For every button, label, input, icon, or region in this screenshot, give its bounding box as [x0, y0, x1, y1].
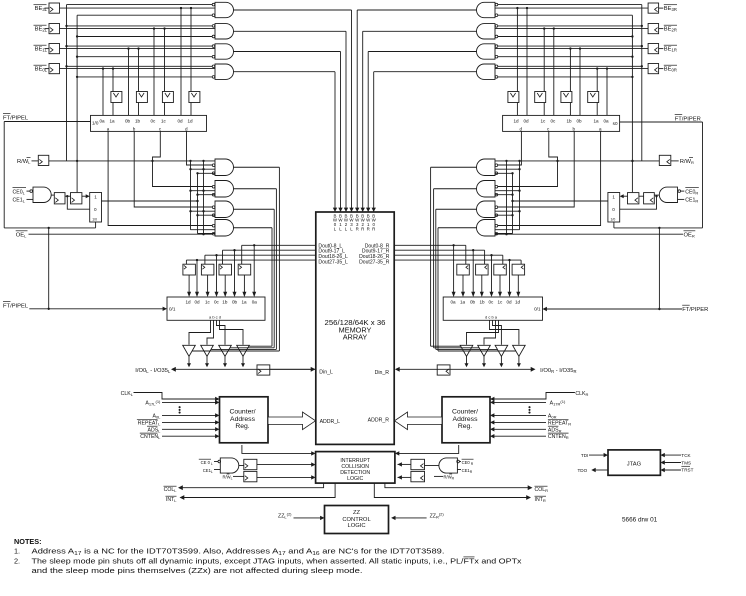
svg-text:0b: 0b: [470, 300, 476, 305]
svg-text:Reg.: Reg.: [458, 423, 472, 430]
svg-text:1.: 1.: [14, 547, 20, 556]
svg-text:0d: 0d: [507, 300, 513, 305]
svg-text:5666 drw 01: 5666 drw 01: [622, 516, 658, 523]
svg-text:CE1L: CE1L: [13, 198, 26, 204]
svg-text:0c: 0c: [214, 300, 220, 305]
svg-text:R: R: [367, 227, 370, 232]
svg-text:Dout27-35_R: Dout27-35_R: [359, 259, 390, 265]
svg-text:INTR: INTR: [535, 497, 546, 503]
svg-text:LOGIC: LOGIC: [347, 523, 365, 529]
svg-text:1c: 1c: [161, 118, 167, 123]
svg-text:COLR: COLR: [535, 487, 549, 493]
svg-text:b: b: [133, 126, 136, 131]
svg-text:R: R: [372, 227, 375, 232]
svg-text:CE0 R: CE0 R: [462, 460, 474, 466]
svg-text:Din_R: Din_R: [375, 370, 390, 376]
svg-text:A17L(1): A17L(1): [145, 399, 161, 406]
svg-text:CE0L: CE0L: [13, 189, 26, 195]
svg-text:BE1L: BE1L: [35, 47, 48, 53]
svg-text:TDI: TDI: [581, 453, 588, 458]
svg-text:INTERRUPT: INTERRUPT: [340, 458, 371, 464]
svg-text:1/0: 1/0: [92, 121, 99, 126]
svg-text:2.: 2.: [14, 556, 20, 565]
svg-text:CNTENR: CNTENR: [548, 434, 569, 440]
svg-text:LOGIC: LOGIC: [347, 476, 363, 482]
svg-text:INTL: INTL: [166, 497, 177, 503]
svg-text:0a: 0a: [100, 118, 106, 123]
svg-text:1/0: 1/0: [611, 217, 616, 221]
svg-text:1a: 1a: [242, 300, 248, 305]
svg-text:1d: 1d: [515, 300, 521, 305]
svg-text:d c b a: d c b a: [485, 314, 498, 319]
svg-text:FT/PIPER: FT/PIPER: [682, 307, 708, 313]
svg-text:0/1: 0/1: [169, 307, 176, 312]
svg-text:A0R: A0R: [548, 413, 557, 419]
svg-text:1/0: 1/0: [92, 217, 97, 221]
svg-text:CE 0 L: CE 0 L: [201, 460, 213, 466]
svg-text:1c: 1c: [541, 118, 547, 123]
svg-text:OER: OER: [684, 233, 695, 239]
svg-text:1c: 1c: [498, 300, 504, 305]
svg-text:BE0R: BE0R: [664, 67, 677, 73]
svg-text:TMS: TMS: [681, 460, 691, 465]
svg-text:BE2L: BE2L: [35, 27, 48, 33]
svg-text:R: R: [356, 227, 359, 232]
svg-text:1c: 1c: [205, 300, 211, 305]
svg-text:a b c d: a b c d: [209, 314, 221, 319]
svg-text:I/O0R - I/O35R: I/O0R - I/O35R: [540, 368, 576, 374]
svg-text:CE1R: CE1R: [462, 468, 473, 474]
svg-text:0d: 0d: [178, 118, 184, 123]
svg-text:d: d: [185, 126, 188, 131]
svg-text:0d: 0d: [524, 118, 530, 123]
svg-text:a: a: [599, 126, 602, 131]
svg-text:ADSL: ADSL: [147, 427, 161, 433]
svg-text:Reg.: Reg.: [235, 423, 249, 430]
svg-text:FT/PIPEL: FT/PIPEL: [3, 115, 29, 121]
svg-text:JTAG: JTAG: [627, 461, 642, 467]
svg-text:0b: 0b: [577, 118, 583, 123]
svg-text:I/O0L - I/O35L: I/O0L - I/O35L: [135, 368, 171, 374]
svg-text:DETECTION: DETECTION: [340, 470, 370, 476]
svg-text:ADSR: ADSR: [548, 427, 562, 433]
svg-text:CNTENL: CNTENL: [140, 434, 161, 440]
svg-text:ZZL(2): ZZL(2): [278, 512, 292, 520]
svg-text:b: b: [573, 126, 576, 131]
svg-text:0/1: 0/1: [534, 307, 541, 312]
svg-text:ZZ: ZZ: [353, 510, 361, 516]
svg-text:0: 0: [612, 207, 615, 212]
svg-text:0a: 0a: [451, 300, 457, 305]
svg-text:BE3L: BE3L: [35, 6, 48, 12]
svg-text:1b: 1b: [567, 118, 573, 123]
svg-text:FT/PIPEL: FT/PIPEL: [3, 303, 29, 309]
svg-text:TRST: TRST: [681, 468, 693, 473]
svg-text:1b: 1b: [222, 300, 228, 305]
svg-text:NOTES:: NOTES:: [14, 537, 42, 546]
svg-text:1d: 1d: [514, 118, 520, 123]
svg-text:0b: 0b: [125, 118, 131, 123]
svg-text:0c: 0c: [551, 118, 557, 123]
svg-text:R: R: [361, 227, 364, 232]
svg-text:REPEATR: REPEATR: [548, 420, 571, 426]
svg-text:1b: 1b: [480, 300, 486, 305]
svg-text:0a: 0a: [604, 118, 610, 123]
svg-text:CLKR: CLKR: [575, 391, 588, 397]
svg-text:R/WR: R/WR: [444, 474, 455, 480]
svg-text:0: 0: [94, 207, 97, 212]
svg-text:1a: 1a: [110, 118, 116, 123]
svg-text:CE0R: CE0R: [685, 189, 698, 195]
svg-text:0c: 0c: [151, 118, 157, 123]
svg-text:BE3R: BE3R: [664, 6, 677, 12]
svg-text:REPEATL: REPEATL: [138, 420, 161, 426]
svg-text:1: 1: [612, 194, 615, 199]
svg-text:1: 1: [94, 194, 97, 199]
svg-text:s0: s0: [613, 121, 618, 126]
svg-text:Address: Address: [230, 416, 256, 423]
svg-text:1b: 1b: [135, 118, 141, 123]
svg-text:R/WL: R/WL: [222, 474, 232, 480]
svg-text:1d: 1d: [186, 300, 192, 305]
svg-text:0b: 0b: [232, 300, 238, 305]
svg-text:TCK: TCK: [681, 453, 691, 458]
svg-text:CLKL: CLKL: [121, 391, 134, 397]
svg-text:COLL: COLL: [164, 487, 178, 493]
svg-text:Address: Address: [453, 416, 479, 423]
svg-text:CE1L: CE1L: [203, 468, 213, 474]
svg-text:ARRAY: ARRAY: [343, 333, 368, 342]
svg-text:OEL: OEL: [16, 233, 27, 239]
svg-text:BE1R: BE1R: [664, 47, 677, 53]
svg-text:1a: 1a: [460, 300, 466, 305]
svg-text:1a: 1a: [594, 118, 600, 123]
svg-text:Counter/: Counter/: [229, 409, 255, 416]
svg-text:Dout27-35_L: Dout27-35_L: [318, 259, 348, 265]
svg-text:ADDR_R: ADDR_R: [368, 418, 390, 424]
svg-text:FT/PIPER: FT/PIPER: [675, 116, 701, 122]
svg-text:c: c: [547, 126, 550, 131]
svg-text:ZZR(2): ZZR(2): [430, 512, 445, 520]
svg-text:a: a: [107, 126, 110, 131]
svg-text:The sleep mode pin shuts off a: The sleep mode pin shuts off all dynamic…: [32, 556, 522, 565]
svg-text:A0L: A0L: [152, 413, 161, 419]
svg-text:Counter/: Counter/: [452, 409, 478, 416]
svg-text:R/WR: R/WR: [680, 159, 694, 165]
svg-text:CE1R: CE1R: [685, 198, 698, 204]
svg-text:R/WL: R/WL: [17, 159, 31, 165]
svg-text:ADDR_L: ADDR_L: [320, 419, 341, 425]
svg-text:A17R(1): A17R(1): [550, 399, 566, 406]
svg-text:and the sleep mode pins themse: and the sleep mode pins themselves (ZZx)…: [32, 566, 363, 575]
svg-text:0c: 0c: [489, 300, 495, 305]
svg-text:c: c: [159, 126, 162, 131]
svg-text:Din_L: Din_L: [319, 369, 333, 375]
svg-text:1d: 1d: [188, 118, 194, 123]
svg-text:d: d: [520, 126, 523, 131]
svg-text:BE2R: BE2R: [664, 27, 677, 33]
svg-text:0d: 0d: [195, 300, 201, 305]
svg-text:BE0L: BE0L: [35, 67, 48, 73]
svg-text:0a: 0a: [252, 300, 258, 305]
svg-text:COLLISION: COLLISION: [341, 464, 369, 470]
svg-text:TDO: TDO: [577, 468, 587, 473]
